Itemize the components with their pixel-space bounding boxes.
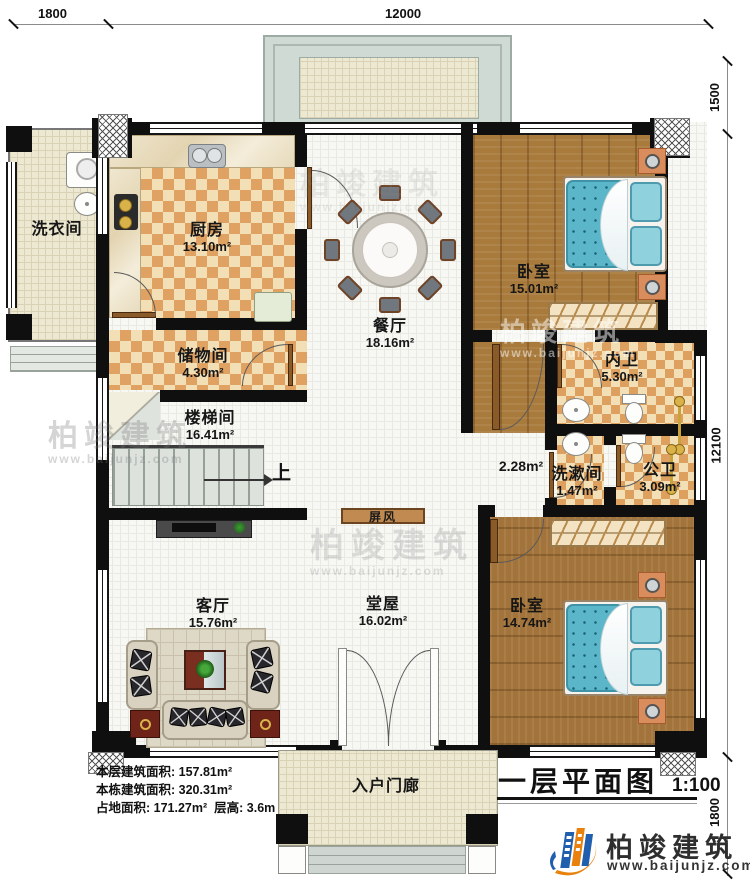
dim-right-bottom: 1800	[707, 798, 722, 827]
tv	[172, 523, 216, 532]
entrance-door-leaf-left	[338, 648, 347, 746]
entrance-door-leaf-right	[430, 648, 439, 746]
area-statistics: 本层建筑面积: 157.81m² 本栋建筑面积: 320.31m² 占地面积: …	[96, 763, 275, 817]
washroom-sink-drain	[574, 442, 578, 446]
label-corridor: 2.28m²	[499, 458, 543, 474]
storage-door-leaf	[288, 344, 293, 386]
coffee-table-plant	[196, 660, 214, 678]
label-bedroom-top: 卧室15.01m²	[510, 264, 558, 297]
side-table	[130, 710, 160, 738]
brand-logo-icon	[543, 820, 601, 878]
dining-chair	[324, 239, 340, 261]
wardrobe-bottom	[550, 519, 666, 547]
bedroom-bottom-window-east	[694, 560, 707, 718]
porch-column-base	[278, 846, 306, 874]
brand-logo-svg	[543, 820, 601, 878]
title-underline-thin	[497, 803, 697, 804]
towel-bar	[678, 400, 681, 450]
laundry-steps	[10, 346, 106, 372]
title-underline	[497, 797, 697, 800]
inner-bath-sink-drain	[574, 408, 578, 412]
porch-floor	[278, 750, 498, 846]
laundry-column	[6, 126, 32, 152]
public-bath-toilet-bowl	[625, 442, 643, 464]
bed-top-pillow	[630, 182, 662, 222]
stat-total-area: 本栋建筑面积: 320.31m²	[96, 781, 275, 799]
bedroom-bottom-door-leaf	[490, 519, 498, 563]
dining-balcony-door	[305, 122, 477, 135]
bed-bottom-pillow	[630, 648, 662, 686]
drawing-scale: 1:100	[672, 775, 721, 797]
label-storage: 储物间4.30m²	[177, 348, 228, 381]
dining-table-hub	[382, 242, 398, 258]
stairs-up-label: 上	[272, 458, 291, 485]
console-plant	[234, 522, 245, 533]
stat-footprint: 占地面积: 171.27m² 层高: 3.6m	[96, 799, 275, 817]
label-laundry: 洗衣间	[31, 221, 82, 239]
side-table	[250, 710, 280, 738]
sofa-cushion	[129, 648, 152, 671]
porch-column-base	[468, 846, 496, 874]
watermark: 柏竣建筑www.baijunjz.com	[48, 420, 192, 466]
stat-floor-area: 本层建筑面积: 157.81m²	[96, 763, 275, 781]
nightstand	[638, 148, 666, 174]
label-hall: 堂屋16.02m²	[359, 596, 407, 629]
shower-head	[666, 444, 677, 455]
laundry-window-west	[6, 162, 17, 308]
watermark: 柏竣建筑www.baijunjz.com	[500, 318, 636, 360]
porch-column	[466, 814, 498, 844]
screen-partition: 屏风	[341, 508, 425, 524]
stove-burner	[119, 216, 132, 229]
label-washroom: 洗漱间1.47m²	[551, 466, 602, 499]
inner-bath-window-east	[694, 356, 707, 420]
screen-label: 屏风	[369, 508, 397, 525]
wall-bedroom-bottom-north-b	[543, 505, 707, 517]
page-title: 一层平面图	[498, 760, 658, 800]
dim-top-main: 12000	[385, 6, 421, 21]
sofa-cushion	[169, 707, 189, 727]
label-bedroom-bottom: 卧室14.74m²	[503, 598, 551, 631]
bedroom-top-window-north	[520, 122, 632, 135]
sofa-cushion	[188, 707, 208, 727]
dining-chair	[440, 239, 456, 261]
wall-bath-north-a	[461, 330, 492, 342]
title-block: 一层平面图 1:100	[498, 760, 721, 800]
washing-machine-drum	[76, 158, 98, 180]
stairs-direction-line	[204, 479, 266, 481]
wall-dining-bedroom-top	[461, 122, 473, 433]
dim-top-left: 1800	[38, 6, 67, 21]
label-living: 客厅15.76m²	[189, 598, 237, 631]
towel-bar-end	[674, 396, 685, 407]
watermark: 柏竣建筑www.baijunjz.com	[310, 528, 474, 579]
bed-bottom-pillow	[630, 606, 662, 644]
sofa-cushion	[130, 675, 153, 698]
range-hood-fan	[207, 148, 222, 163]
kitchen-window-west	[96, 150, 109, 234]
porch-steps	[308, 846, 466, 874]
porch-column	[276, 814, 308, 844]
wall-bedroom-bottom-west	[478, 505, 490, 758]
wall-stairwell-south	[96, 508, 307, 520]
brand-website: www.baijunjz.com	[607, 858, 750, 873]
nightstand	[638, 572, 666, 598]
inner-bath-toilet-bowl	[625, 402, 643, 424]
label-public-bath: 公卫3.09m²	[639, 462, 680, 495]
label-porch: 入户门廊	[352, 778, 420, 796]
kitchen-window-north	[150, 122, 262, 135]
stove-burner	[119, 199, 132, 212]
bed-top-pillow	[630, 226, 662, 266]
label-dining: 餐厅18.16m²	[366, 318, 414, 351]
laundry-sink-drain	[85, 202, 89, 206]
bedroom-top-door-leaf	[492, 344, 500, 430]
kitchen-cabinet	[254, 292, 292, 322]
wall-storage-south	[160, 390, 307, 402]
bedroom-bottom-window-south	[530, 745, 660, 758]
wall-kitchen-dining-a	[295, 135, 307, 167]
laundry-column	[6, 314, 32, 340]
wall-kitchen-dining-b	[295, 229, 307, 330]
dimension-line-right	[727, 60, 728, 876]
living-window-west	[96, 570, 109, 702]
watermark: 柏竣建筑www.baijunjz.com	[300, 168, 444, 214]
public-bath-window-east	[694, 438, 707, 500]
dimension-line-top	[13, 24, 708, 25]
nightstand	[638, 698, 666, 724]
balcony-floor	[299, 57, 479, 119]
dim-right-main: 12100	[709, 427, 724, 463]
sofa-cushion	[225, 707, 246, 728]
sofa-cushion	[250, 646, 274, 670]
dim-right-top: 1500	[707, 83, 722, 112]
label-kitchen: 厨房13.10m²	[183, 222, 231, 255]
range-hood-fan	[192, 148, 207, 163]
floor-plan: 1800 12000 1500 12100 1800	[0, 0, 750, 888]
dining-chair	[379, 297, 401, 313]
label-stairwell: 楼梯间16.41m²	[184, 410, 235, 443]
hatch-decoration	[98, 114, 128, 158]
nightstand	[638, 274, 666, 300]
wall-washroom-publicbath-a	[604, 436, 616, 445]
